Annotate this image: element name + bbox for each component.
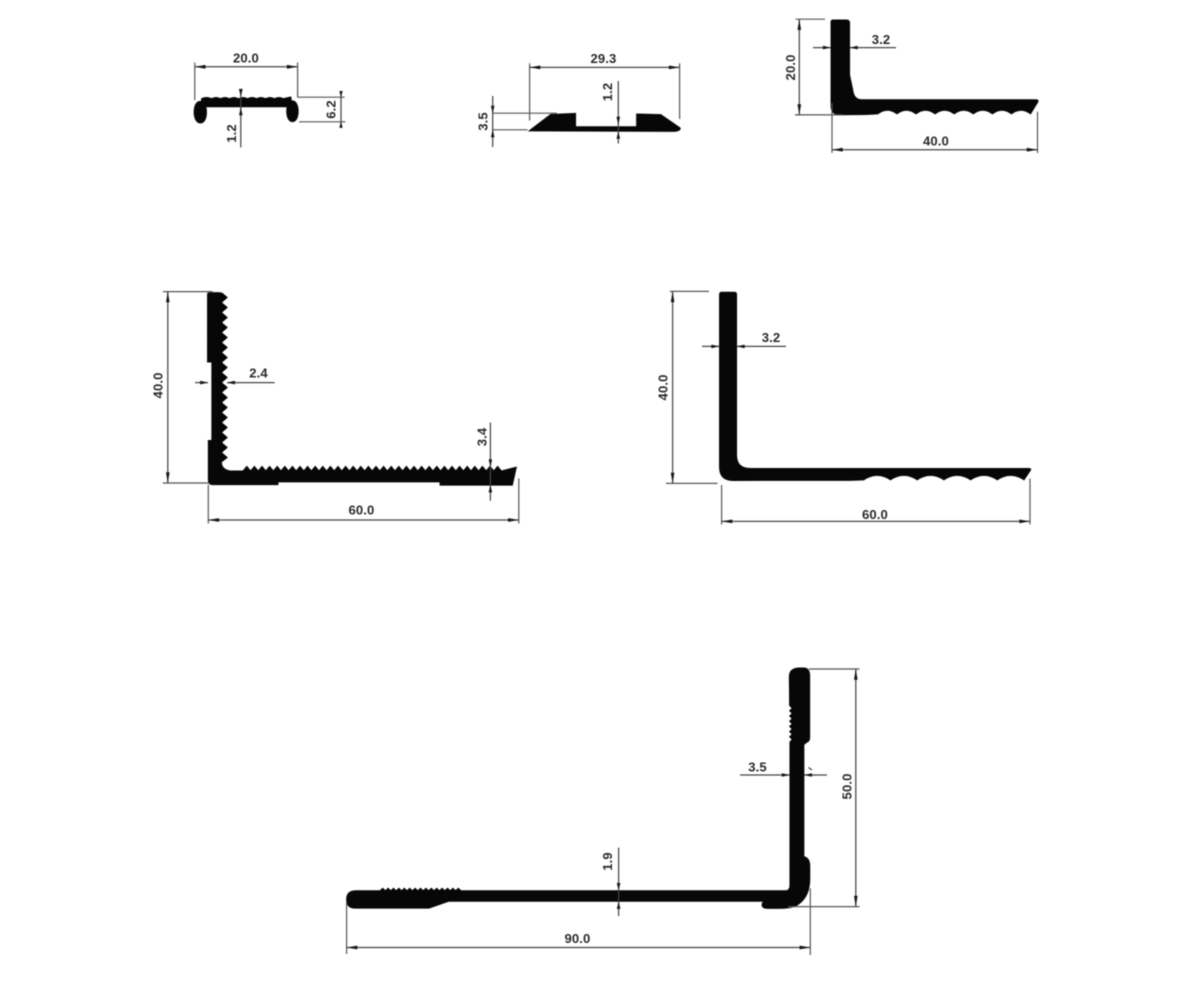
svg-text:3.4: 3.4 (474, 427, 489, 446)
svg-text:1.2: 1.2 (224, 124, 239, 143)
svg-text:3.2: 3.2 (762, 330, 781, 345)
svg-text:29.3: 29.3 (591, 51, 617, 66)
svg-text:3.5: 3.5 (748, 759, 767, 774)
svg-text:1.9: 1.9 (600, 852, 615, 871)
svg-text:1.2: 1.2 (600, 83, 615, 102)
svg-text:90.0: 90.0 (565, 931, 591, 946)
svg-text:3.5: 3.5 (476, 112, 491, 131)
svg-text:3.2: 3.2 (872, 32, 891, 47)
svg-text:60.0: 60.0 (349, 502, 375, 517)
svg-text:60.0: 60.0 (862, 507, 888, 522)
svg-text:40.0: 40.0 (923, 134, 949, 149)
svg-text:2.4: 2.4 (249, 365, 268, 380)
svg-text:6.2: 6.2 (324, 100, 339, 119)
svg-text:20.0: 20.0 (783, 55, 798, 81)
svg-text:20.0: 20.0 (233, 51, 259, 66)
svg-text:40.0: 40.0 (151, 373, 166, 399)
svg-text:50.0: 50.0 (839, 774, 854, 800)
svg-text:40.0: 40.0 (655, 375, 670, 401)
